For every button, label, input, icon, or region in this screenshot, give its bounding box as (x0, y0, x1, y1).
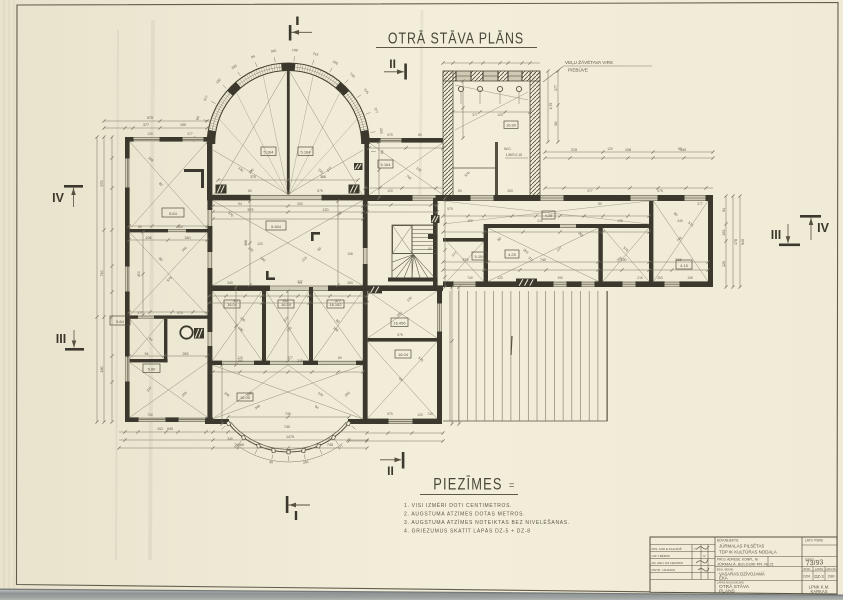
svg-text:1980: 1980 (827, 575, 834, 579)
svg-text:TDP IK KULTŪRAS NODAĻA: TDP IK KULTŪRAS NODAĻA (719, 550, 777, 555)
svg-text:940: 940 (167, 427, 173, 431)
svg-text:377: 377 (587, 189, 593, 193)
svg-text:377: 377 (287, 356, 293, 360)
svg-text:5.84: 5.84 (116, 319, 125, 324)
svg-text:215: 215 (676, 258, 682, 262)
svg-text:575: 575 (100, 181, 104, 187)
svg-text:575: 575 (657, 189, 663, 193)
svg-text:120: 120 (257, 242, 263, 246)
svg-text:263: 263 (283, 299, 289, 303)
svg-text:AR. ARH. DZ.LIEDSKR: AR. ARH. DZ.LIEDSKR (652, 561, 684, 565)
svg-text:120: 120 (497, 276, 503, 280)
svg-text:1060: 1060 (236, 443, 244, 447)
svg-text:DZ-3: DZ-3 (814, 574, 824, 579)
svg-text:OTRĀ STĀVA PLĀNS: OTRĀ STĀVA PLĀNS (388, 29, 524, 47)
svg-text:IV: IV (52, 191, 64, 205)
svg-text:94: 94 (238, 202, 242, 206)
svg-text:80: 80 (234, 299, 238, 303)
svg-text:4.25: 4.25 (508, 252, 517, 257)
svg-text:LATV. PSRS: LATV. PSRS (805, 539, 823, 543)
svg-text:VEĻU ŽĀVĒTAVA VIRS: VEĻU ŽĀVĒTAVA VIRS (565, 58, 613, 65)
svg-text:80: 80 (554, 122, 558, 126)
svg-text:478: 478 (734, 239, 738, 245)
svg-text:190: 190 (557, 276, 563, 280)
svg-text:PAS. AND.E.KALNIŅŠ: PAS. AND.E.KALNIŅŠ (652, 546, 682, 551)
svg-text:263: 263 (157, 427, 163, 431)
svg-text:740: 740 (284, 425, 290, 429)
svg-text:LAPU SK.: LAPU SK. (826, 568, 837, 571)
svg-text:190: 190 (467, 219, 473, 223)
svg-text:II: II (387, 464, 394, 478)
svg-text:1. VISI IZMĒRI DOTI CENTIMETRO: 1. VISI IZMĒRI DOTI CENTIMETROS. (404, 502, 512, 509)
svg-text:263: 263 (507, 189, 513, 193)
svg-text:263: 263 (177, 225, 183, 229)
svg-text:16.80: 16.80 (506, 123, 517, 128)
svg-text:468: 468 (244, 240, 248, 246)
svg-text:BŪVOBJEKTS:: BŪVOBJEKTS: (717, 539, 739, 543)
svg-text:4. GRIEZUMUS SKATĪT LAPĀS DZ-5: 4. GRIEZUMUS SKATĪT LAPĀS DZ-5 + DZ-8 (404, 528, 531, 535)
svg-text:1475: 1475 (286, 435, 294, 439)
svg-text:745: 745 (327, 443, 333, 447)
svg-text:377: 377 (143, 123, 149, 127)
svg-text:340: 340 (227, 437, 233, 441)
svg-text:LAPAS NOSAUKUMS:: LAPAS NOSAUKUMS: (717, 581, 745, 585)
svg-text:5.164: 5.164 (380, 162, 391, 167)
svg-text:120: 120 (147, 132, 153, 136)
svg-text:IV: IV (817, 221, 829, 235)
svg-text:740: 740 (540, 258, 546, 262)
svg-text:120: 120 (323, 208, 329, 212)
svg-text:263: 263 (722, 230, 726, 236)
svg-text:190: 190 (237, 359, 243, 363)
svg-text:377: 377 (554, 85, 558, 91)
svg-text:263: 263 (347, 281, 353, 285)
svg-text:IV: IV (703, 554, 706, 558)
svg-text:ĒKA: ĒKA (719, 576, 728, 581)
svg-text:16.04: 16.04 (398, 352, 409, 357)
svg-text:80: 80 (338, 356, 342, 360)
svg-text:JŪRMALAS PILSĒTAS: JŪRMALAS PILSĒTAS (719, 544, 764, 549)
svg-text:190: 190 (180, 123, 186, 127)
svg-text:80: 80 (598, 202, 602, 206)
svg-text:940: 940 (741, 239, 745, 245)
svg-text:PLĀNS: PLĀNS (719, 587, 735, 594)
svg-text:3. AUGSTUMA ATZĪMES NOTEIKTAS: 3. AUGSTUMA ATZĪMES NOTEIKTAS BEZ NIVELĒ… (404, 519, 570, 526)
svg-text:JŪRMALĀ, BULDURI PR. Nr.21: JŪRMALĀ, BULDURI PR. Nr.21 (717, 561, 775, 566)
svg-text:108: 108 (347, 252, 353, 256)
svg-text:740: 740 (285, 412, 291, 416)
svg-text:IZSTR. J.RAMAN: IZSTR. J.RAMAN (652, 568, 676, 572)
svg-text:263: 263 (657, 276, 663, 280)
svg-text:94: 94 (722, 208, 726, 212)
svg-text:575: 575 (248, 208, 254, 212)
svg-text:II: II (389, 57, 396, 71)
svg-text:W.C.: W.C. (504, 147, 512, 151)
svg-text:108: 108 (687, 276, 693, 280)
svg-text:400: 400 (137, 271, 141, 277)
svg-text:108: 108 (625, 148, 631, 152)
svg-text:575: 575 (317, 189, 323, 193)
svg-text:80: 80 (428, 247, 432, 251)
svg-text:108: 108 (617, 219, 623, 223)
svg-text:III: III (771, 228, 781, 242)
svg-text:263: 263 (183, 352, 189, 356)
svg-text:94: 94 (145, 352, 149, 356)
svg-text:5.464: 5.464 (271, 224, 282, 229)
svg-text:215: 215 (637, 276, 643, 280)
svg-text:215: 215 (571, 148, 577, 152)
svg-text:377: 377 (187, 132, 193, 136)
svg-text:DZM.: DZM. (803, 575, 811, 579)
svg-text:4.25: 4.25 (545, 213, 554, 218)
svg-text:575: 575 (463, 258, 469, 262)
svg-text:5.104: 5.104 (474, 254, 485, 259)
svg-text:740: 740 (467, 276, 473, 280)
svg-text:377: 377 (297, 280, 303, 284)
svg-text:16.456: 16.456 (393, 321, 406, 326)
svg-text:120: 120 (607, 147, 613, 151)
svg-text:120: 120 (497, 113, 503, 117)
svg-text:190: 190 (100, 367, 104, 373)
svg-text:VS 0,15: VS 0,15 (510, 153, 522, 157)
svg-text:575: 575 (397, 333, 403, 337)
svg-text:KARKAS: KARKAS (811, 589, 828, 594)
svg-text:740: 740 (100, 271, 104, 277)
svg-text:STAD.: STAD. (803, 567, 811, 571)
svg-text:575: 575 (387, 412, 393, 416)
svg-text:GIP J.BĒRZS: GIP J.BĒRZS (652, 554, 670, 558)
svg-text:73/93: 73/93 (806, 559, 824, 567)
svg-text:215: 215 (537, 219, 543, 223)
svg-text:80: 80 (418, 133, 422, 137)
svg-text:740: 740 (427, 412, 433, 416)
svg-text:575: 575 (147, 116, 153, 120)
svg-text:80: 80 (678, 147, 682, 151)
svg-text:377: 377 (137, 311, 143, 315)
svg-text:340: 340 (677, 219, 683, 223)
svg-text:340: 340 (185, 236, 191, 240)
svg-text:120: 120 (722, 261, 726, 267)
svg-text:263: 263 (379, 128, 384, 134)
svg-text:340: 340 (227, 281, 233, 285)
svg-text:5.164: 5.164 (263, 150, 274, 155)
svg-text:377: 377 (472, 113, 478, 117)
svg-text:575: 575 (447, 207, 453, 211)
svg-text:108: 108 (146, 236, 152, 240)
svg-text:5.164: 5.164 (300, 150, 311, 155)
svg-text:368: 368 (320, 175, 326, 179)
svg-text:PIEZĪMES: PIEZĪMES (433, 476, 502, 494)
svg-text:740: 740 (147, 413, 153, 417)
svg-text:575: 575 (177, 311, 183, 315)
svg-text:108: 108 (292, 48, 298, 52)
svg-text:80: 80 (138, 225, 142, 229)
svg-text:2. AUGSTUMA ATZĪMES DOTAS METR: 2. AUGSTUMA ATZĪMES DOTAS METROS. (404, 511, 525, 518)
svg-text:PIEBŪVE: PIEBŪVE (568, 67, 588, 73)
svg-text:LAPAS: LAPAS (815, 567, 823, 571)
svg-text:80: 80 (458, 189, 462, 193)
svg-text:5.64: 5.64 (169, 211, 178, 216)
svg-text:5.80: 5.80 (148, 367, 157, 372)
svg-text:4.15: 4.15 (680, 263, 689, 268)
svg-text:377: 377 (697, 202, 703, 206)
svg-text:4,75: 4,75 (549, 103, 553, 110)
svg-text:215: 215 (297, 359, 303, 363)
svg-text:377: 377 (335, 299, 341, 303)
svg-text:575: 575 (387, 133, 393, 137)
svg-text:=: = (509, 480, 514, 490)
svg-text:375: 375 (250, 175, 256, 179)
svg-text:120: 120 (387, 189, 393, 193)
svg-text:III: III (56, 332, 66, 346)
svg-text:94: 94 (328, 437, 332, 441)
svg-text:80: 80 (248, 189, 252, 193)
svg-text:263: 263 (297, 202, 303, 206)
svg-text:120: 120 (417, 413, 423, 417)
